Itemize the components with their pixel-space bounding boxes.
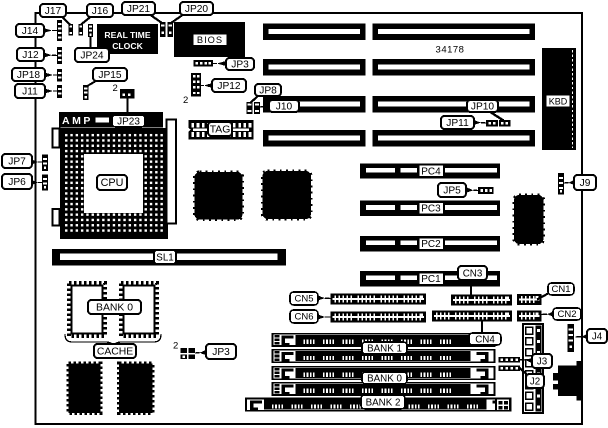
svg-text:J2: J2 [530,376,540,387]
svg-text:JP21: JP21 [127,4,151,15]
svg-text:JP18: JP18 [17,70,41,81]
svg-text:JP7: JP7 [8,156,26,167]
svg-text:J14: J14 [22,26,39,37]
svg-text:JP3: JP3 [231,59,249,70]
svg-text:JP6: JP6 [8,177,26,188]
svg-text:JP23: JP23 [117,116,140,127]
svg-text:JP20: JP20 [185,4,209,15]
svg-text:JP3: JP3 [212,347,230,358]
svg-text:CN2: CN2 [557,309,576,320]
svg-text:TAG: TAG [210,125,231,136]
svg-text:SL1: SL1 [156,252,173,263]
svg-text:PC2: PC2 [421,239,441,250]
svg-text:J17: J17 [45,6,62,17]
svg-text:CN4: CN4 [475,334,495,345]
svg-text:2: 2 [113,83,118,94]
svg-text:JP11: JP11 [446,118,469,129]
svg-text:BIOS: BIOS [197,35,223,45]
svg-text:CLOCK: CLOCK [112,41,143,51]
svg-text:2: 2 [183,95,188,106]
svg-text:PC1: PC1 [421,274,441,285]
svg-text:BANK 2: BANK 2 [366,397,401,408]
svg-text:J16: J16 [92,6,109,17]
svg-text:PC3: PC3 [421,204,441,215]
svg-text:JP12: JP12 [217,81,241,92]
svg-text:2: 2 [173,341,178,352]
svg-text:CN5: CN5 [294,294,313,305]
svg-text:JP8: JP8 [259,85,277,96]
svg-text:34178: 34178 [436,45,465,56]
svg-text:BANK 0: BANK 0 [96,303,133,314]
svg-text:JP10: JP10 [471,101,495,112]
svg-text:J11: J11 [22,86,38,97]
svg-text:J3: J3 [537,356,548,367]
svg-text:AMP: AMP [62,115,93,127]
svg-text:CN3: CN3 [463,268,483,279]
svg-text:CPU: CPU [101,177,124,189]
svg-text:JP5: JP5 [443,185,461,196]
svg-text:PC4: PC4 [421,166,441,177]
svg-text:J12: J12 [22,50,39,61]
svg-text:BANK 1: BANK 1 [367,343,402,354]
svg-text:KBD: KBD [549,96,568,106]
svg-text:JP24: JP24 [80,50,104,61]
svg-text:J9: J9 [580,178,591,189]
svg-text:REAL TIME: REAL TIME [104,30,150,40]
svg-text:BANK 0: BANK 0 [367,373,402,384]
svg-text:CACHE: CACHE [97,347,133,358]
svg-text:J4: J4 [592,331,603,342]
svg-text:JP15: JP15 [98,70,122,81]
svg-text:CN6: CN6 [294,312,313,323]
svg-text:CN1: CN1 [551,284,570,295]
svg-text:J10: J10 [276,101,293,112]
